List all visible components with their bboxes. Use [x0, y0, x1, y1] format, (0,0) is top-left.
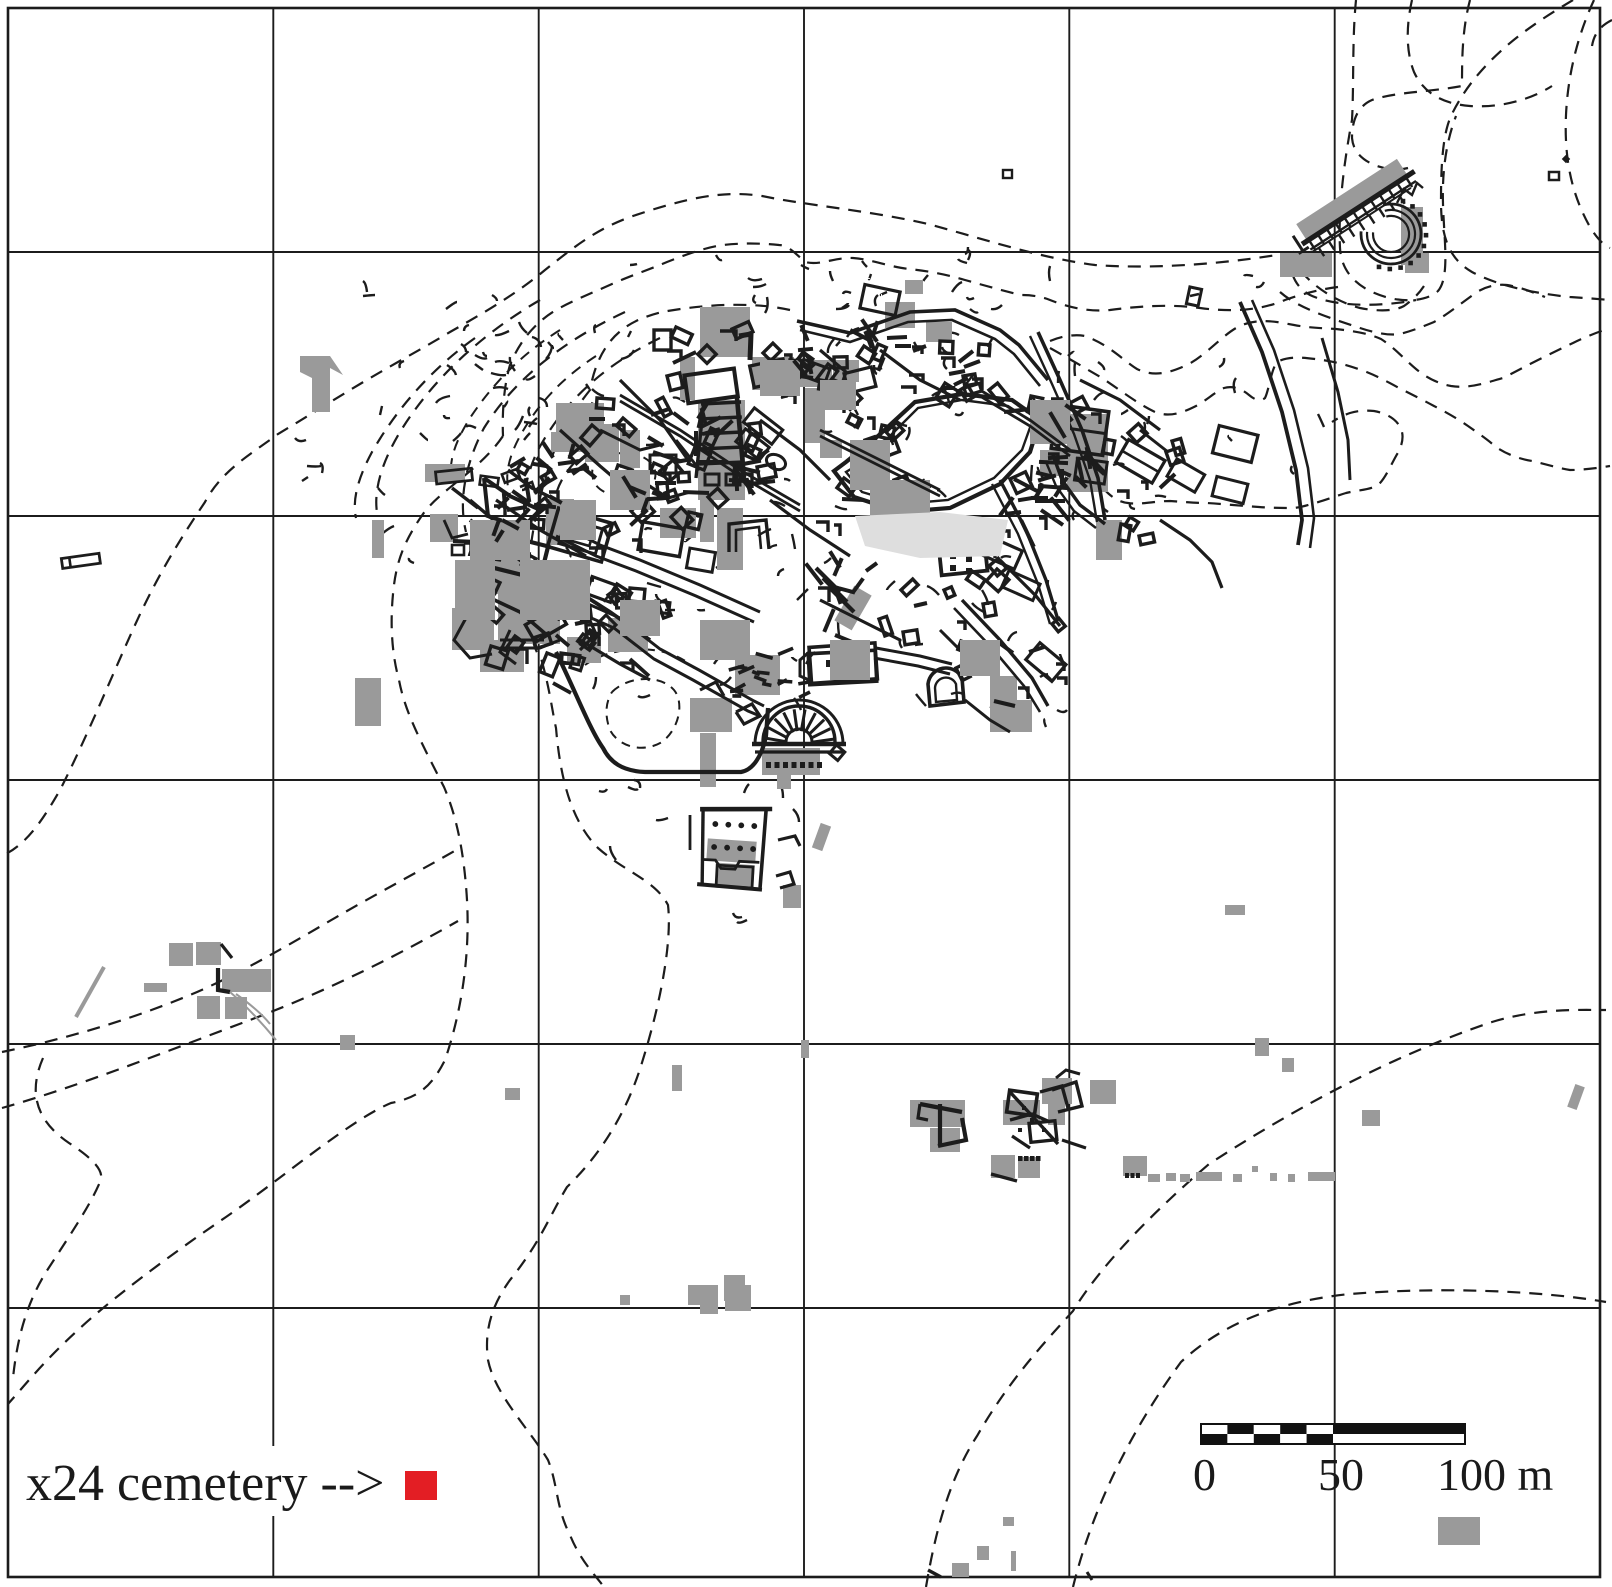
- svg-text:50: 50: [1318, 1449, 1364, 1500]
- svg-text:100 m: 100 m: [1437, 1449, 1554, 1500]
- svg-text:0: 0: [1193, 1449, 1216, 1500]
- svg-text:x24 cemetery -->: x24 cemetery -->: [26, 1455, 385, 1512]
